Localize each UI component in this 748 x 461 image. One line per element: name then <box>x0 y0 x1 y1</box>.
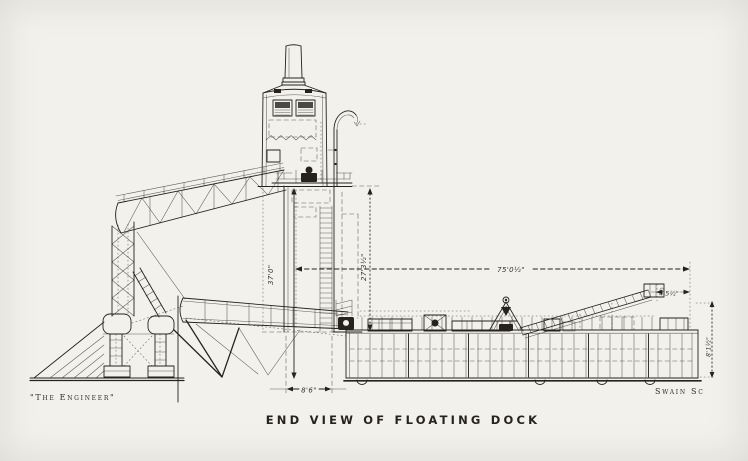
shore-gantry-truss <box>30 222 185 381</box>
dim-ramp-height: 4'5½" <box>659 290 679 298</box>
pontoon-hull <box>262 330 701 385</box>
publisher-credit: "The Engineer" <box>30 393 115 402</box>
dim-height-left: 37'0" <box>267 264 275 285</box>
bucket-ladder-casing <box>263 186 362 332</box>
dim-depth-right: 8'1½" <box>705 337 713 357</box>
caption: END VIEW OF FLOATING DOCK <box>266 413 541 427</box>
elevator-tower <box>262 45 327 186</box>
deck-a-frame <box>489 297 523 331</box>
gooseneck-pipe <box>328 111 366 186</box>
dim-height-right: 27'3½" <box>360 253 368 281</box>
engraving-page: 37'0" 27'3½" 75'0½" 4'5½" 8'1½" 8'6" END… <box>0 0 748 461</box>
discharge-chute <box>174 296 348 402</box>
tower-platform <box>258 167 352 187</box>
dim-well-width: 8'6" <box>301 387 317 395</box>
floating-dock-drawing: 37'0" 27'3½" 75'0½" 4'5½" 8'1½" 8'6" END… <box>0 0 748 461</box>
dim-beam-overall: 75'0½" <box>497 266 525 274</box>
engraver-credit: Swain Sc <box>655 387 705 396</box>
inclined-lattice-boom <box>116 163 286 233</box>
